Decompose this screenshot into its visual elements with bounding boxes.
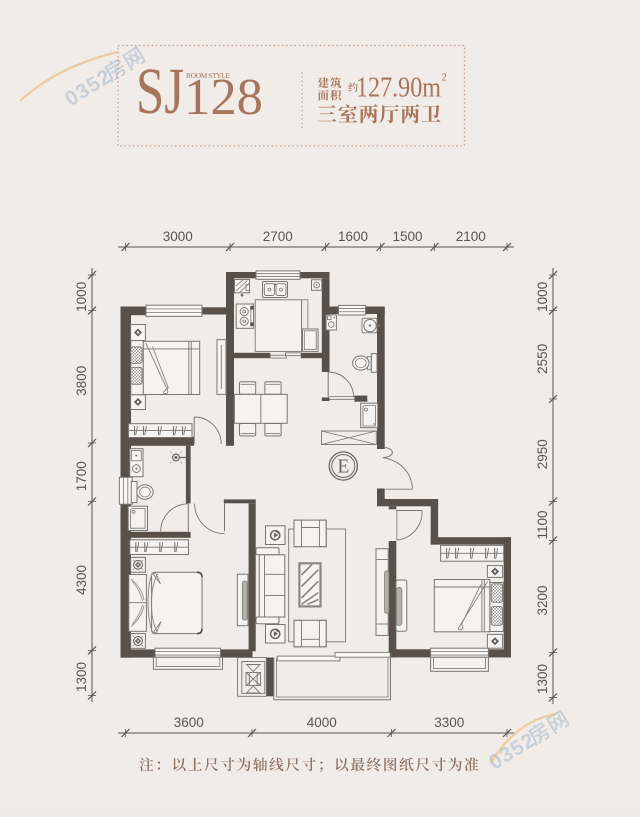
svg-text:2: 2 bbox=[442, 73, 447, 84]
svg-text:4300: 4300 bbox=[74, 565, 89, 595]
svg-text:3200: 3200 bbox=[535, 585, 550, 615]
svg-text:3600: 3600 bbox=[174, 715, 204, 730]
svg-text:2550: 2550 bbox=[535, 344, 550, 374]
svg-text:127.90m: 127.90m bbox=[356, 73, 441, 104]
svg-text:1000: 1000 bbox=[535, 282, 550, 312]
svg-text:1700: 1700 bbox=[74, 461, 89, 491]
svg-text:1500: 1500 bbox=[392, 229, 422, 244]
svg-text:3800: 3800 bbox=[74, 366, 89, 396]
svg-text:2950: 2950 bbox=[535, 439, 550, 469]
svg-text:4000: 4000 bbox=[307, 715, 337, 730]
svg-text:ROOM STYLE: ROOM STYLE bbox=[186, 71, 230, 80]
svg-text:3000: 3000 bbox=[163, 229, 193, 244]
svg-text:2700: 2700 bbox=[263, 229, 293, 244]
svg-text:1600: 1600 bbox=[338, 229, 368, 244]
svg-text:2100: 2100 bbox=[456, 229, 486, 244]
svg-text:1000: 1000 bbox=[74, 282, 89, 312]
svg-text:1100: 1100 bbox=[535, 510, 550, 539]
svg-text:1300: 1300 bbox=[535, 664, 550, 694]
svg-text:SJ: SJ bbox=[136, 55, 184, 128]
svg-text:3300: 3300 bbox=[434, 715, 464, 730]
svg-text:1300: 1300 bbox=[74, 662, 89, 692]
svg-text:E: E bbox=[337, 457, 349, 478]
